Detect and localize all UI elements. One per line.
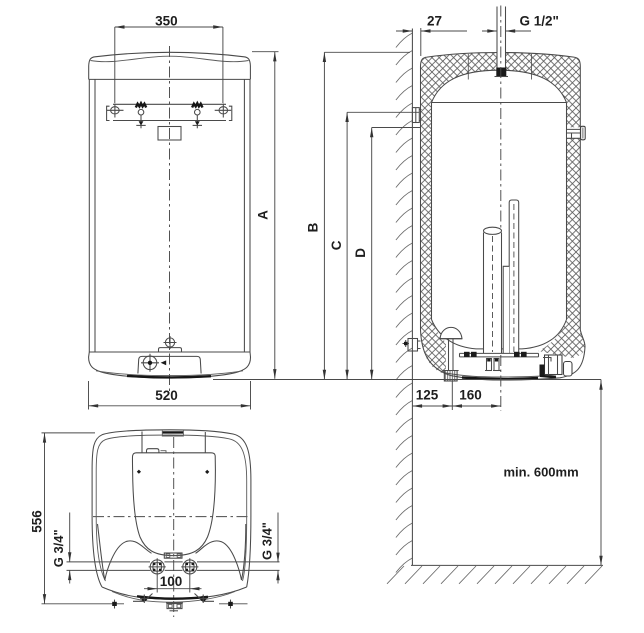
svg-text:125: 125	[416, 388, 439, 403]
svg-text:350: 350	[155, 13, 178, 28]
svg-text:27: 27	[427, 14, 442, 29]
svg-text:B: B	[306, 222, 321, 232]
svg-text:C: C	[329, 240, 344, 250]
svg-text:160: 160	[459, 388, 482, 403]
svg-text:G 3/4": G 3/4"	[259, 522, 274, 560]
svg-text:min. 600mm: min. 600mm	[504, 464, 579, 479]
svg-text:100: 100	[160, 574, 183, 589]
svg-text:520: 520	[155, 388, 178, 403]
svg-text:A: A	[256, 210, 271, 220]
svg-text:G 3/4": G 3/4"	[51, 529, 66, 567]
svg-text:D: D	[353, 248, 368, 258]
svg-text:G 1/2": G 1/2"	[520, 14, 559, 29]
svg-text:556: 556	[29, 510, 44, 533]
